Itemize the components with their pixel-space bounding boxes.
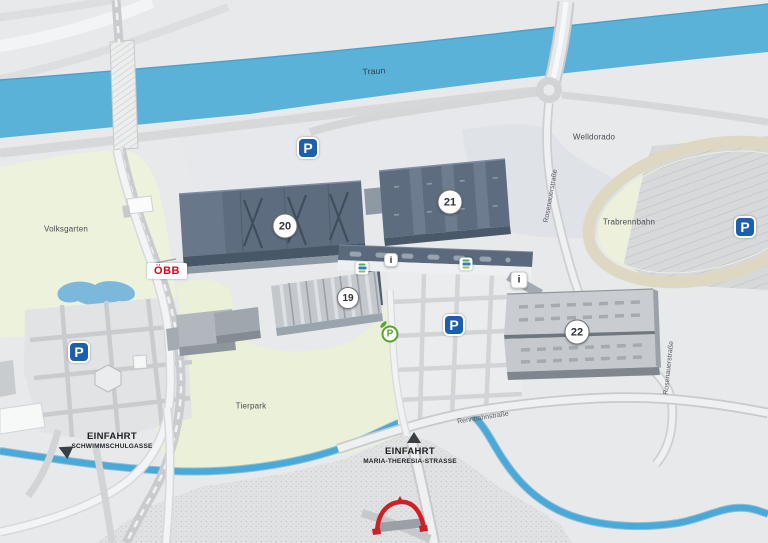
- fairground-map: Traun Welldorado Trabrennbahn Volksgarte…: [0, 0, 768, 543]
- roundabout: [536, 77, 562, 103]
- bus-stop-icon-west[interactable]: [356, 262, 369, 275]
- bus-glyph-bottom: [359, 271, 366, 273]
- entrance-maria-theresia: EINFAHRT MARIA-THERESIA-STRASSE: [363, 447, 457, 465]
- hall-21-badge[interactable]: 21: [438, 190, 463, 215]
- bus-glyph-top: [463, 260, 470, 262]
- bus-glyph-middle: [358, 267, 366, 270]
- entrance-arrow-south: [407, 432, 421, 443]
- info-icon-west[interactable]: i: [384, 253, 398, 267]
- parking-icon-north[interactable]: P: [297, 137, 319, 159]
- entrance-subtitle: MARIA-THERESIA-STRASSE: [363, 458, 457, 465]
- hall-19-badge[interactable]: 19: [337, 287, 359, 309]
- info-icon-east[interactable]: i: [511, 272, 528, 289]
- welldorado-label: Welldorado: [573, 133, 615, 142]
- trabrennbahn-label: Trabrennbahn: [603, 218, 655, 227]
- rail-bridge: [110, 40, 138, 150]
- entrance-schwimmschulgasse: EINFAHRT SCHWIMMSCHULGASSE: [71, 432, 152, 450]
- bus-glyph-bottom: [463, 267, 470, 269]
- entrance-title: EINFAHRT: [363, 447, 457, 458]
- entrance-title: EINFAHRT: [71, 432, 152, 443]
- parking-icon-west[interactable]: P: [68, 341, 90, 363]
- parking-icon-trabrennbahn[interactable]: P: [734, 216, 756, 238]
- volksgarten-label: Volksgarten: [44, 225, 88, 234]
- entrance-subtitle: SCHWIMMSCHULGASSE: [71, 443, 152, 450]
- hall-22-badge[interactable]: 22: [565, 320, 590, 345]
- bus-stop-icon-east[interactable]: [460, 258, 473, 271]
- hall-20-badge[interactable]: 20: [273, 214, 298, 239]
- oebb-station-badge[interactable]: ÖBB: [147, 263, 187, 279]
- river-label: Traun: [362, 65, 386, 77]
- green-parking-icon[interactable]: P: [382, 326, 399, 343]
- station-building: [127, 196, 153, 214]
- bus-glyph-middle: [462, 263, 470, 266]
- tierpark-label: Tierpark: [236, 402, 267, 411]
- bus-glyph-top: [359, 264, 366, 266]
- parking-icon-central[interactable]: P: [443, 314, 465, 336]
